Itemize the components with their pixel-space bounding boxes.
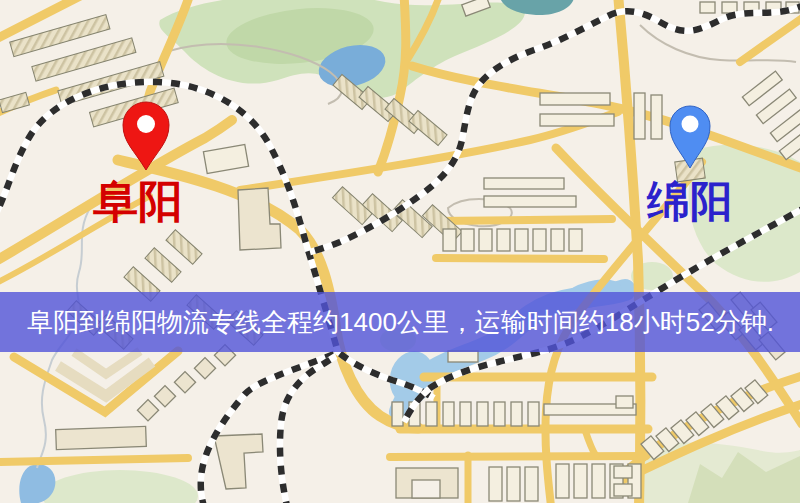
info-banner: 阜阳到绵阳物流专线全程约1400公里，运输时间约18小时52分钟. [0, 292, 800, 352]
banner-text: 阜阳到绵阳物流专线全程约1400公里，运输时间约18小时52分钟. [0, 292, 800, 352]
map-view[interactable]: 阜阳 绵阳 阜阳到绵阳物流专线全程约1400公里，运输时间约18小时52分钟. [0, 0, 800, 503]
destination-label: 绵阳 [646, 178, 733, 225]
origin-label: 阜阳 [93, 177, 183, 227]
map-canvas[interactable]: 阜阳 绵阳 [0, 0, 800, 503]
